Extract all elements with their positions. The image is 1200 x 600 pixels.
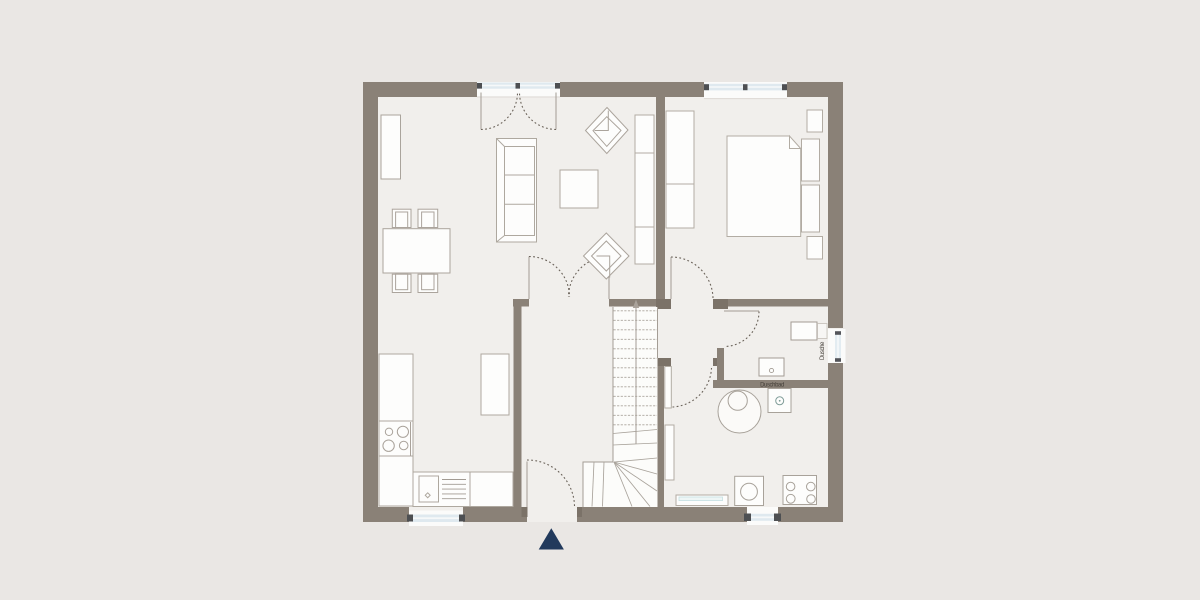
svg-text:Dusche: Dusche [820,341,826,360]
svg-text:Duschbad: Duschbad [760,383,784,389]
